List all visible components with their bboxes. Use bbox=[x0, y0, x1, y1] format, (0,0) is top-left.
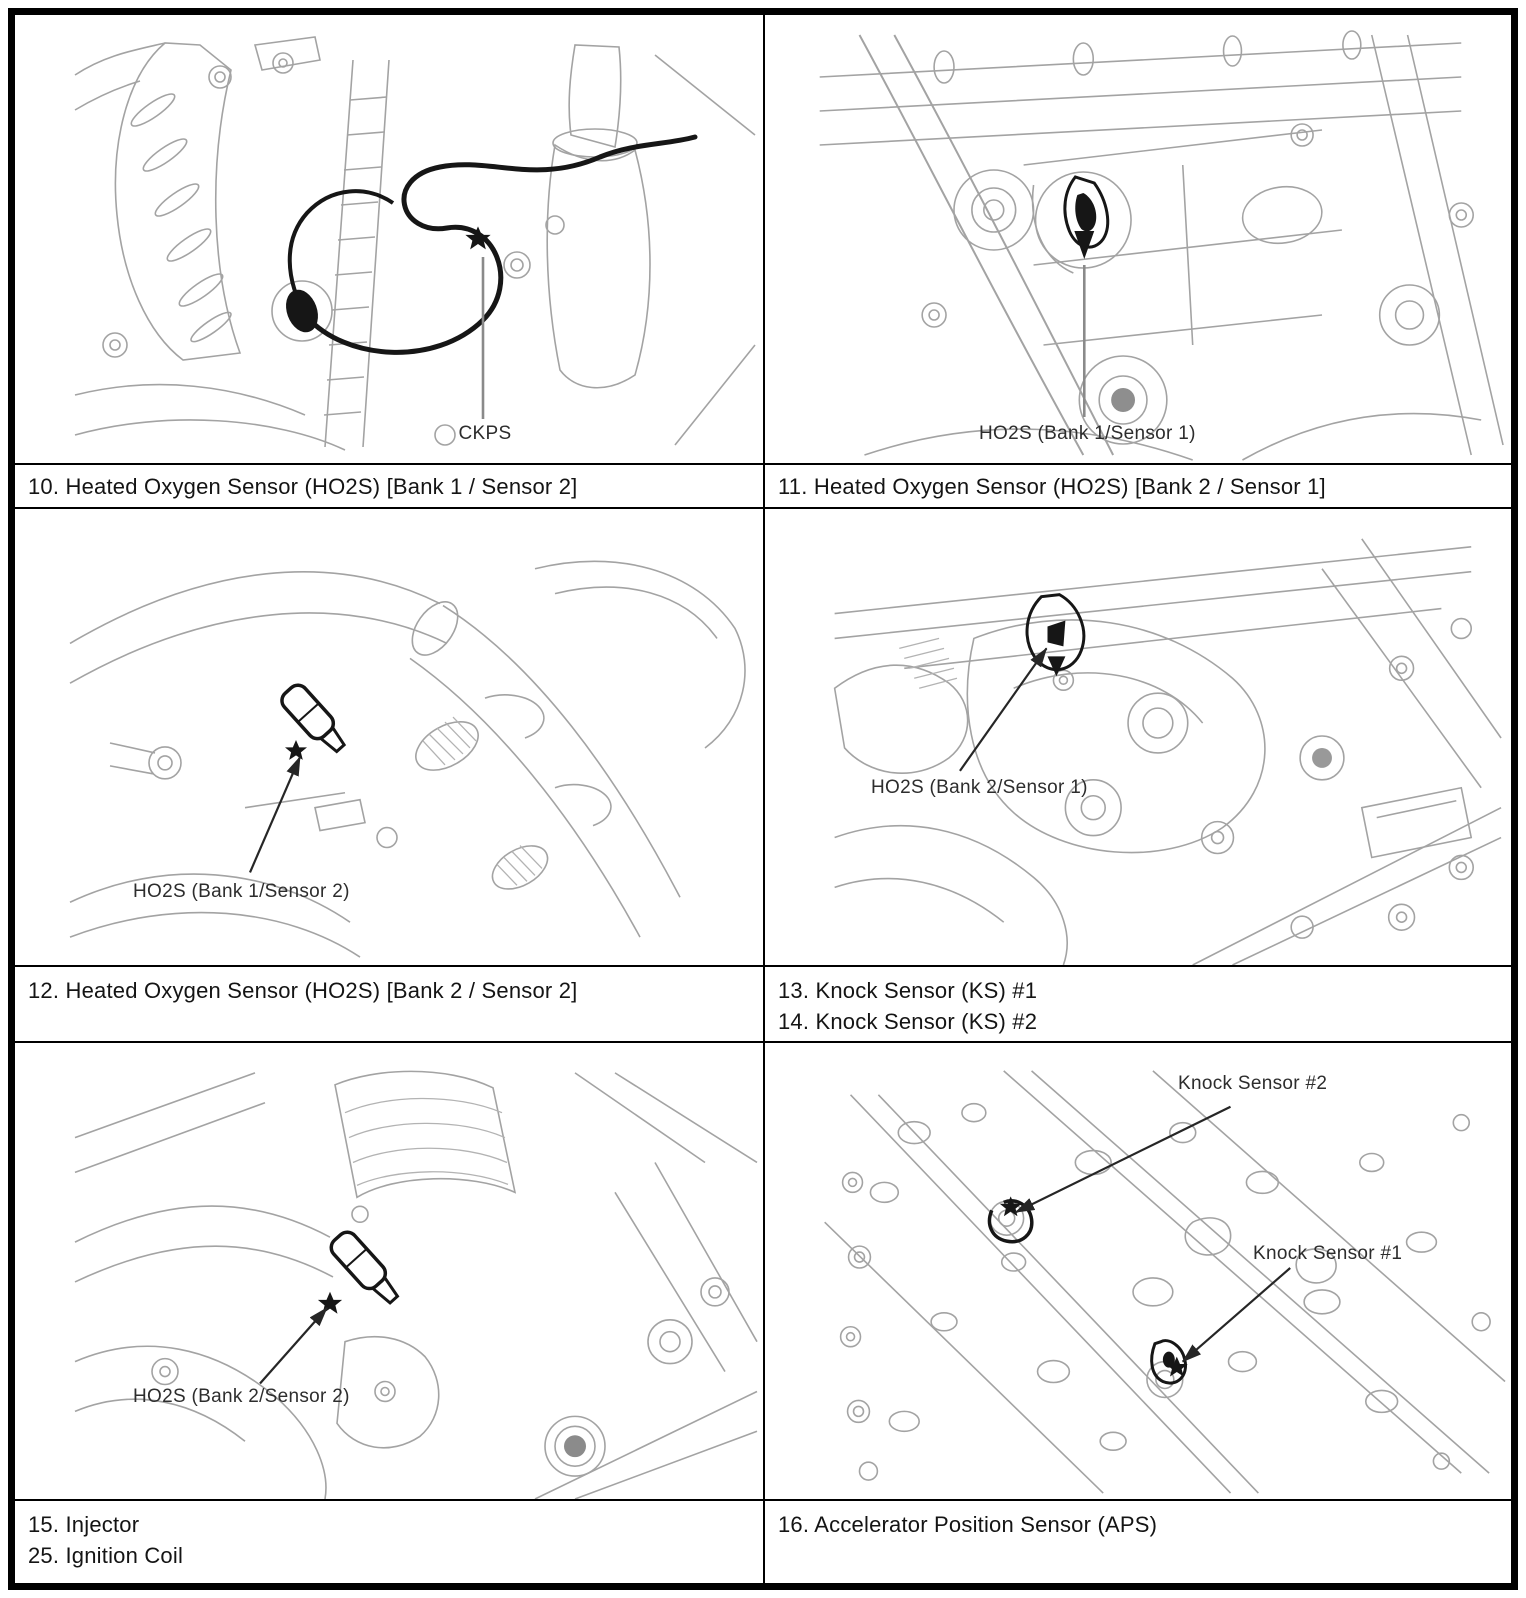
knock-sensor-1-callout-label: Knock Sensor #1 bbox=[1253, 1243, 1402, 1265]
ho2s-b2s1-callout-label: HO2S (Bank 2/Sensor 1) bbox=[871, 777, 1088, 799]
exhaust-pipe-sketch bbox=[75, 1071, 757, 1499]
figure-cell-ho2s-b2s2: HO2S (Bank 2/Sensor 2) bbox=[15, 1041, 763, 1499]
figure-cell-ckps: CKPS bbox=[15, 15, 763, 463]
sensor-location-star-marker bbox=[318, 1292, 342, 1314]
knock-sensor-1-pointer-arrow bbox=[1183, 1268, 1290, 1362]
caption-item-10: 10. Heated Oxygen Sensor (HO2S) [Bank 1 … bbox=[28, 471, 763, 502]
manifold-sketch bbox=[835, 539, 1501, 965]
knock-sensor-1 bbox=[1152, 1341, 1186, 1383]
caption-item-15: 15. Injector bbox=[28, 1509, 763, 1540]
ho2s-b1s1-callout-label: HO2S (Bank 1/Sensor 1) bbox=[979, 423, 1196, 445]
caption-cell-item-16: 16. Accelerator Position Sensor (APS) bbox=[763, 1499, 1511, 1583]
ho2s-b2s1-pointer-arrow bbox=[960, 648, 1047, 770]
ckps-callout-label: CKPS bbox=[447, 423, 523, 445]
ho2s-sensor bbox=[278, 681, 351, 757]
wiring-harness bbox=[280, 137, 695, 352]
engine-sketch bbox=[820, 31, 1503, 460]
knock-sensor-2-star-marker bbox=[1000, 1196, 1022, 1216]
caption-cell-items-15-25: 15. Injector 25. Ignition Coil bbox=[15, 1499, 763, 1583]
engine-valley-sketch bbox=[825, 1071, 1505, 1493]
ho2s-b2s2-pointer-arrow bbox=[260, 1308, 327, 1384]
knock-sensor-2-callout-label: Knock Sensor #2 bbox=[1178, 1073, 1327, 1095]
ho2s-sensor bbox=[1065, 177, 1108, 259]
service-manual-sensor-location-page: CKPS bbox=[0, 0, 1526, 1598]
ho2s-b1s1-engine-illustration bbox=[765, 15, 1511, 463]
ho2s-sensor bbox=[327, 1228, 404, 1309]
caption-item-12: 12. Heated Oxygen Sensor (HO2S) [Bank 2 … bbox=[28, 975, 763, 1006]
caption-item-13: 13. Knock Sensor (KS) #1 bbox=[778, 975, 1511, 1006]
component-location-table: CKPS bbox=[8, 8, 1518, 1590]
sensor-location-star-marker bbox=[285, 740, 307, 760]
ho2s-b2s2-callout-label: HO2S (Bank 2/Sensor 2) bbox=[133, 1386, 350, 1408]
caption-cell-item-12: 12. Heated Oxygen Sensor (HO2S) [Bank 2 … bbox=[15, 965, 763, 1041]
figure-cell-knock-sensors: Knock Sensor #2 Knock Sensor #1 bbox=[763, 1041, 1511, 1499]
caption-item-16: 16. Accelerator Position Sensor (APS) bbox=[778, 1509, 1511, 1540]
ho2s-b2s2-exhaust-illustration bbox=[15, 1043, 763, 1499]
caption-item-11: 11. Heated Oxygen Sensor (HO2S) [Bank 2 … bbox=[778, 471, 1511, 502]
ckps-engine-illustration bbox=[15, 15, 763, 463]
caption-item-25: 25. Ignition Coil bbox=[28, 1540, 763, 1571]
ho2s-b1s2-callout-label: HO2S (Bank 1/Sensor 2) bbox=[133, 881, 350, 903]
caption-cell-item-11: 11. Heated Oxygen Sensor (HO2S) [Bank 2 … bbox=[763, 463, 1511, 507]
caption-cell-item-10: 10. Heated Oxygen Sensor (HO2S) [Bank 1 … bbox=[15, 463, 763, 507]
knock-sensor-2-pointer-arrow bbox=[1016, 1107, 1231, 1213]
caption-cell-items-13-14: 13. Knock Sensor (KS) #1 14. Knock Senso… bbox=[763, 965, 1511, 1041]
figure-cell-ho2s-b2s1: HO2S (Bank 2/Sensor 1) bbox=[763, 507, 1511, 965]
figure-cell-ho2s-b1s2: HO2S (Bank 1/Sensor 2) bbox=[15, 507, 763, 965]
ho2s-b2s1-manifold-illustration bbox=[765, 509, 1511, 965]
engine-sketch bbox=[75, 37, 755, 450]
ho2s-b1s2-exhaust-illustration bbox=[15, 509, 763, 965]
knock-sensors-engine-valley-illustration bbox=[765, 1043, 1511, 1499]
caption-item-14: 14. Knock Sensor (KS) #2 bbox=[778, 1006, 1511, 1037]
figure-cell-ho2s-b1s1: HO2S (Bank 1/Sensor 1) bbox=[763, 15, 1511, 463]
ho2s-b1s2-pointer-arrow bbox=[250, 757, 300, 872]
